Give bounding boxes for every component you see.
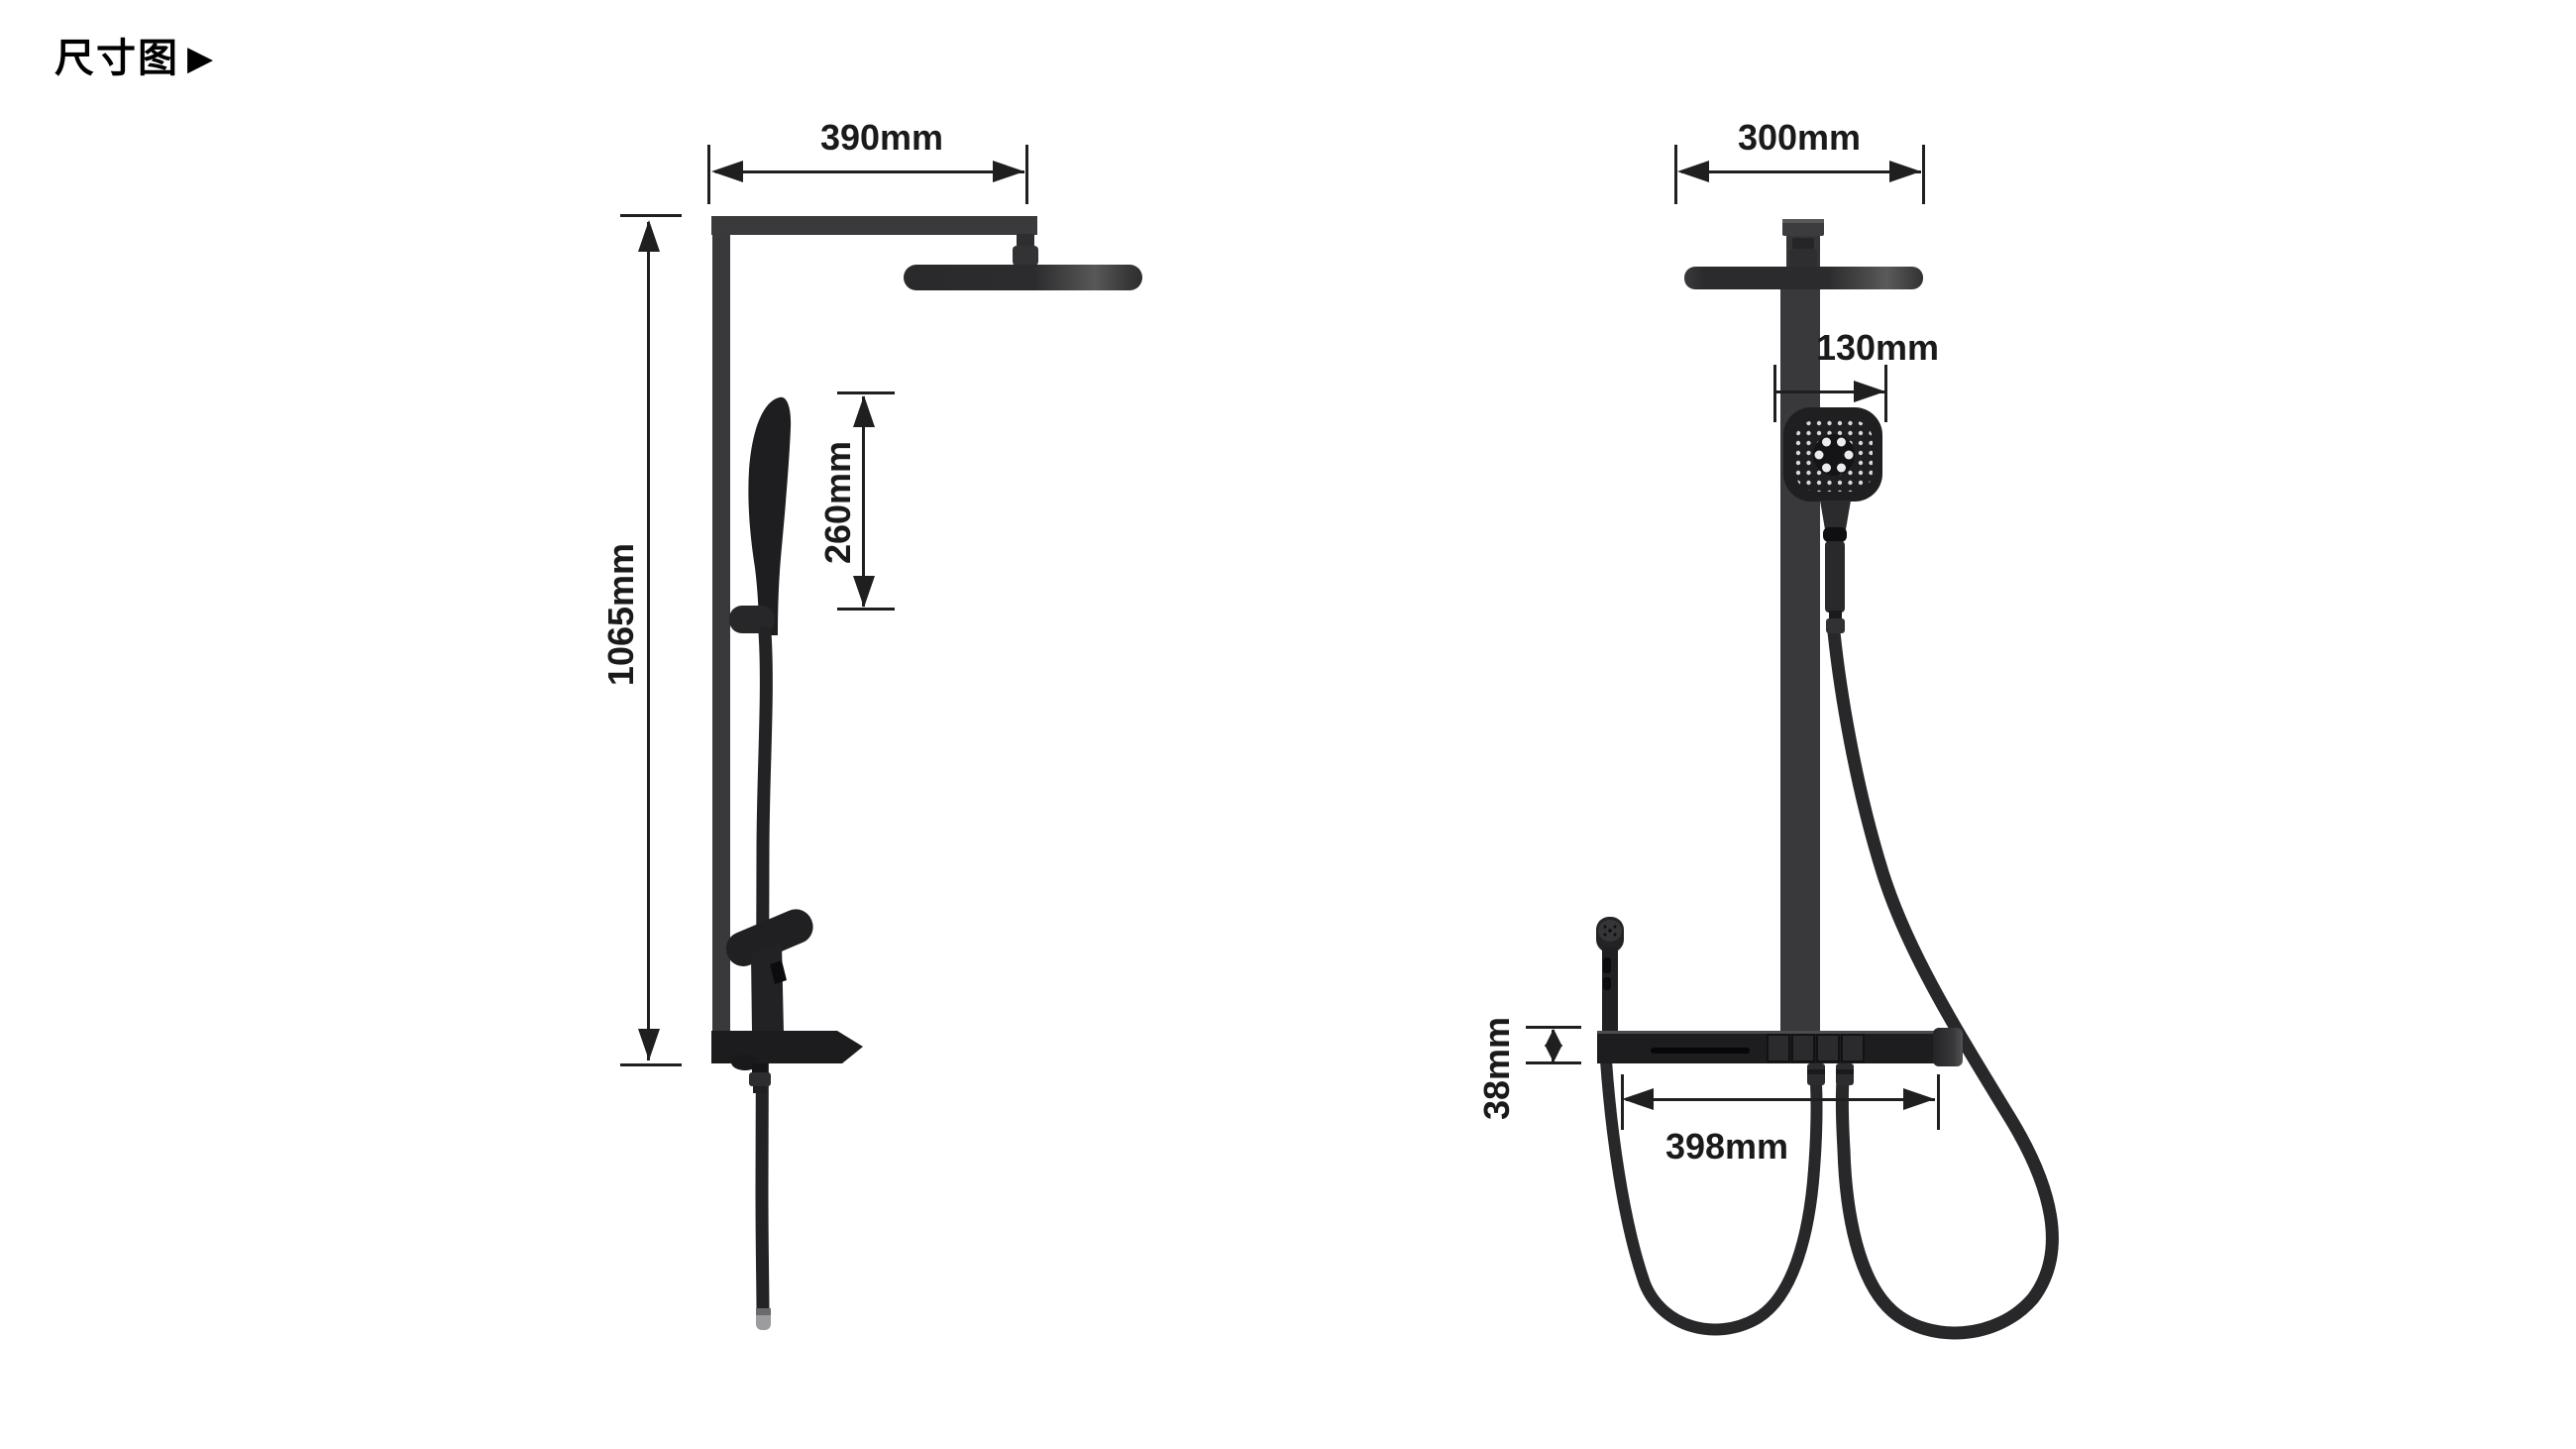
side-hand-shower bbox=[748, 397, 791, 635]
side-view-artwork bbox=[711, 216, 1142, 1330]
front-handle-connector bbox=[1829, 611, 1842, 619]
side-arm-width-label: 390mm bbox=[763, 117, 1001, 159]
extension-tick bbox=[1937, 1074, 1940, 1130]
arrowhead-down-icon bbox=[853, 576, 875, 608]
arrowhead-left-icon bbox=[1622, 1088, 1654, 1110]
arrowhead-up-icon bbox=[638, 220, 660, 252]
arrowhead-down-icon bbox=[638, 1029, 660, 1060]
front-handle-nut bbox=[1826, 618, 1845, 633]
side-total-height-label: 1065mm bbox=[599, 496, 643, 733]
extension-tick bbox=[1922, 145, 1925, 204]
front-shelf-end-cap bbox=[1933, 1028, 1963, 1066]
dimension-line bbox=[1626, 1098, 1935, 1101]
arrowhead-left-icon bbox=[711, 161, 743, 182]
arrowhead-right-icon bbox=[1889, 161, 1921, 182]
side-hose-nut-bottom bbox=[753, 1086, 767, 1093]
extension-tick bbox=[620, 214, 682, 217]
side-shower-arm bbox=[711, 216, 1037, 235]
dimension-line bbox=[647, 222, 650, 1060]
extension-tick bbox=[837, 391, 895, 394]
extension-tick bbox=[620, 1063, 682, 1066]
front-shelf-thickness-label: 38mm bbox=[1477, 989, 1517, 1148]
front-sprayer-button-1 bbox=[1603, 957, 1611, 973]
extension-tick bbox=[837, 608, 895, 611]
front-shelf-slot bbox=[1651, 1048, 1750, 1054]
front-riser-pole bbox=[1780, 289, 1820, 1034]
side-hand-shower-length-label: 260mm bbox=[818, 403, 858, 602]
side-riser-pole bbox=[712, 234, 730, 1031]
dimension-line bbox=[715, 170, 1024, 173]
front-hose-nut-left-band bbox=[1807, 1069, 1825, 1074]
side-hose-nut bbox=[749, 1072, 771, 1086]
front-hand-shower-hose bbox=[1834, 632, 2052, 1333]
extension-tick bbox=[1025, 145, 1028, 204]
arrowhead-down-icon bbox=[1545, 1045, 1562, 1062]
arrowhead-right-icon bbox=[1903, 1088, 1935, 1110]
front-head-width-label: 300mm bbox=[1680, 117, 1918, 159]
front-overhead-shower bbox=[1684, 267, 1923, 289]
arrowhead-right-icon bbox=[993, 161, 1024, 182]
extension-tick bbox=[1773, 365, 1776, 422]
side-bidet-sprayer-handle bbox=[751, 943, 784, 1033]
front-shelf-width-label: 398mm bbox=[1608, 1126, 1846, 1168]
fixture-artwork bbox=[0, 0, 2576, 1449]
front-head-joint-nut bbox=[1789, 249, 1817, 269]
arrowhead-left-icon bbox=[1677, 161, 1709, 182]
front-shelf-highlight bbox=[1597, 1031, 1938, 1034]
front-hand-shower-width-label: 130mm bbox=[1778, 327, 1977, 369]
side-hose-nut-top bbox=[752, 1063, 768, 1072]
front-hand-shower-collar bbox=[1823, 527, 1847, 542]
arrowhead-up-icon bbox=[853, 395, 875, 427]
front-hose-nut-right-band bbox=[1836, 1069, 1854, 1074]
extension-tick bbox=[707, 145, 710, 204]
front-arm-cap-highlight bbox=[1782, 219, 1824, 223]
front-sprayer-button-2 bbox=[1603, 977, 1611, 990]
front-head-joint bbox=[1792, 238, 1814, 249]
side-hose-end-band bbox=[756, 1308, 771, 1315]
side-head-joint-nut bbox=[1013, 246, 1038, 266]
side-head-joint bbox=[1017, 234, 1034, 248]
side-overhead-shower bbox=[904, 265, 1142, 290]
arrowhead-right-icon bbox=[1854, 381, 1885, 402]
dimension-line bbox=[1681, 170, 1921, 173]
dimension-diagram: 尺寸图▶ bbox=[0, 0, 2576, 1449]
front-hand-shower-handle bbox=[1825, 541, 1845, 613]
